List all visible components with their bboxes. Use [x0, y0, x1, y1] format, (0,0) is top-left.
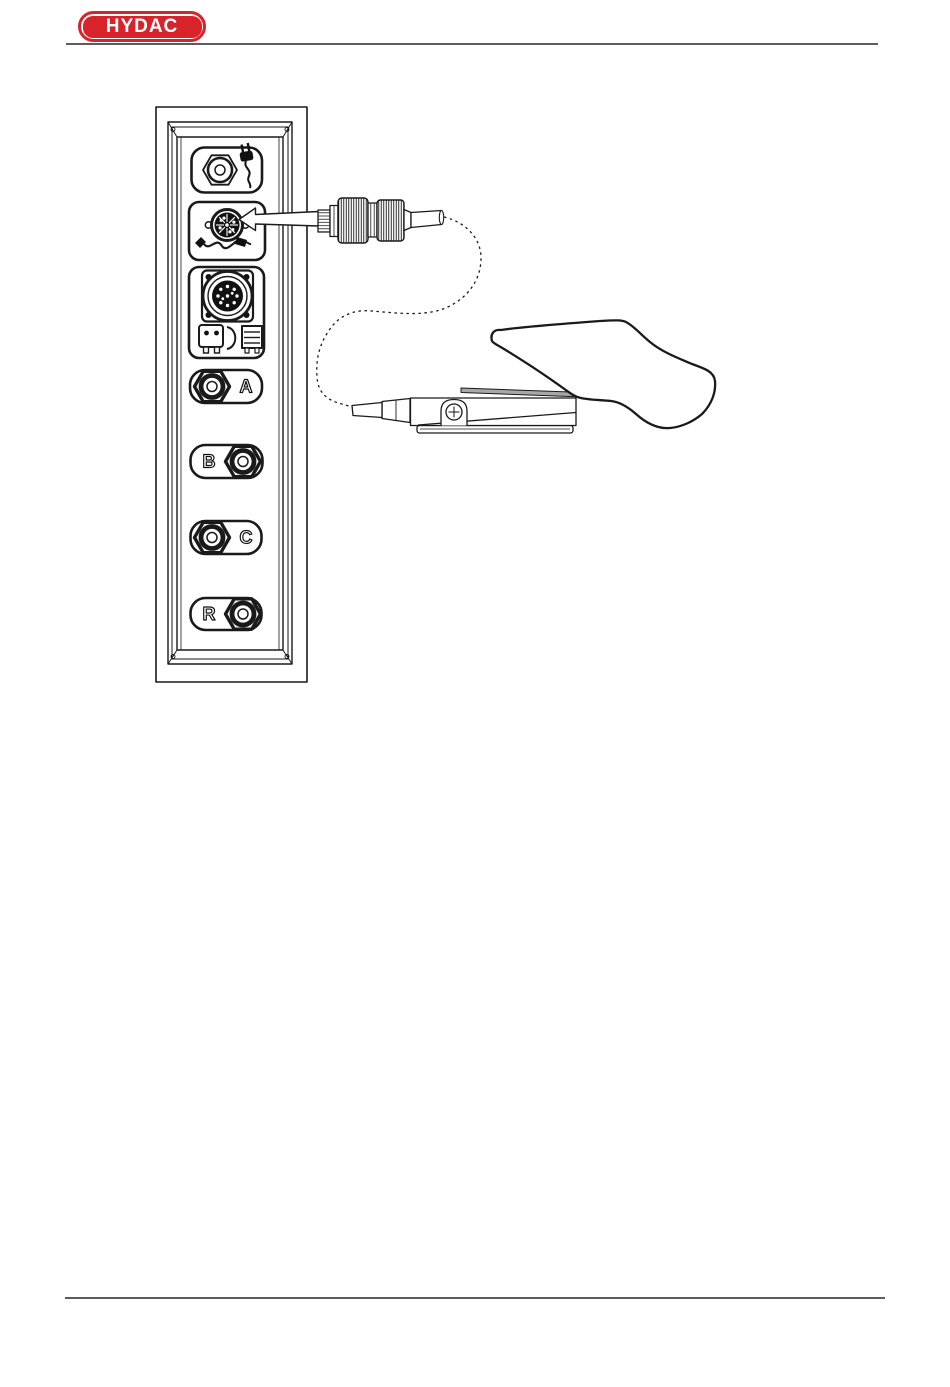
measuring-port-r: R [191, 598, 262, 630]
plug-cable-stub [411, 211, 442, 228]
port-c-label: C [240, 528, 253, 548]
multipin-connector-icon [202, 271, 253, 322]
device-rear-panel: A B C [156, 107, 307, 682]
hex-nut-connector-icon [195, 522, 230, 552]
manual-page: { "colors": { "brand_red": "#d9232a", "i… [0, 0, 950, 1387]
power-socket [192, 142, 263, 192]
port-r-label: R [203, 604, 216, 624]
pedal-top-plate [461, 388, 577, 397]
connection-diagram: A B C [0, 0, 950, 760]
plug-knurl-ring [338, 198, 368, 243]
hex-nut-connector-icon [226, 599, 261, 629]
pedal-housing [411, 398, 577, 426]
measuring-port-c: C [191, 521, 262, 554]
measuring-port-b: B [191, 445, 263, 478]
dashed-cable [317, 217, 481, 407]
plug-threaded-nose [318, 210, 330, 232]
pedal-screw [441, 400, 467, 426]
pedal-cable-tip [352, 403, 382, 418]
foot-pedal [352, 388, 577, 433]
plug-knurl-ring [377, 200, 404, 241]
hex-nut-connector-icon [226, 446, 261, 476]
interface-socket [189, 267, 264, 358]
cable-plug [318, 198, 444, 243]
port-b-label: B [203, 452, 216, 472]
hex-nut-connector-icon [195, 371, 230, 401]
port-a-label: A [240, 377, 253, 397]
hex-nut-connector-icon [203, 155, 237, 184]
footer-rule [65, 1297, 885, 1299]
measuring-port-a: A [190, 370, 262, 403]
